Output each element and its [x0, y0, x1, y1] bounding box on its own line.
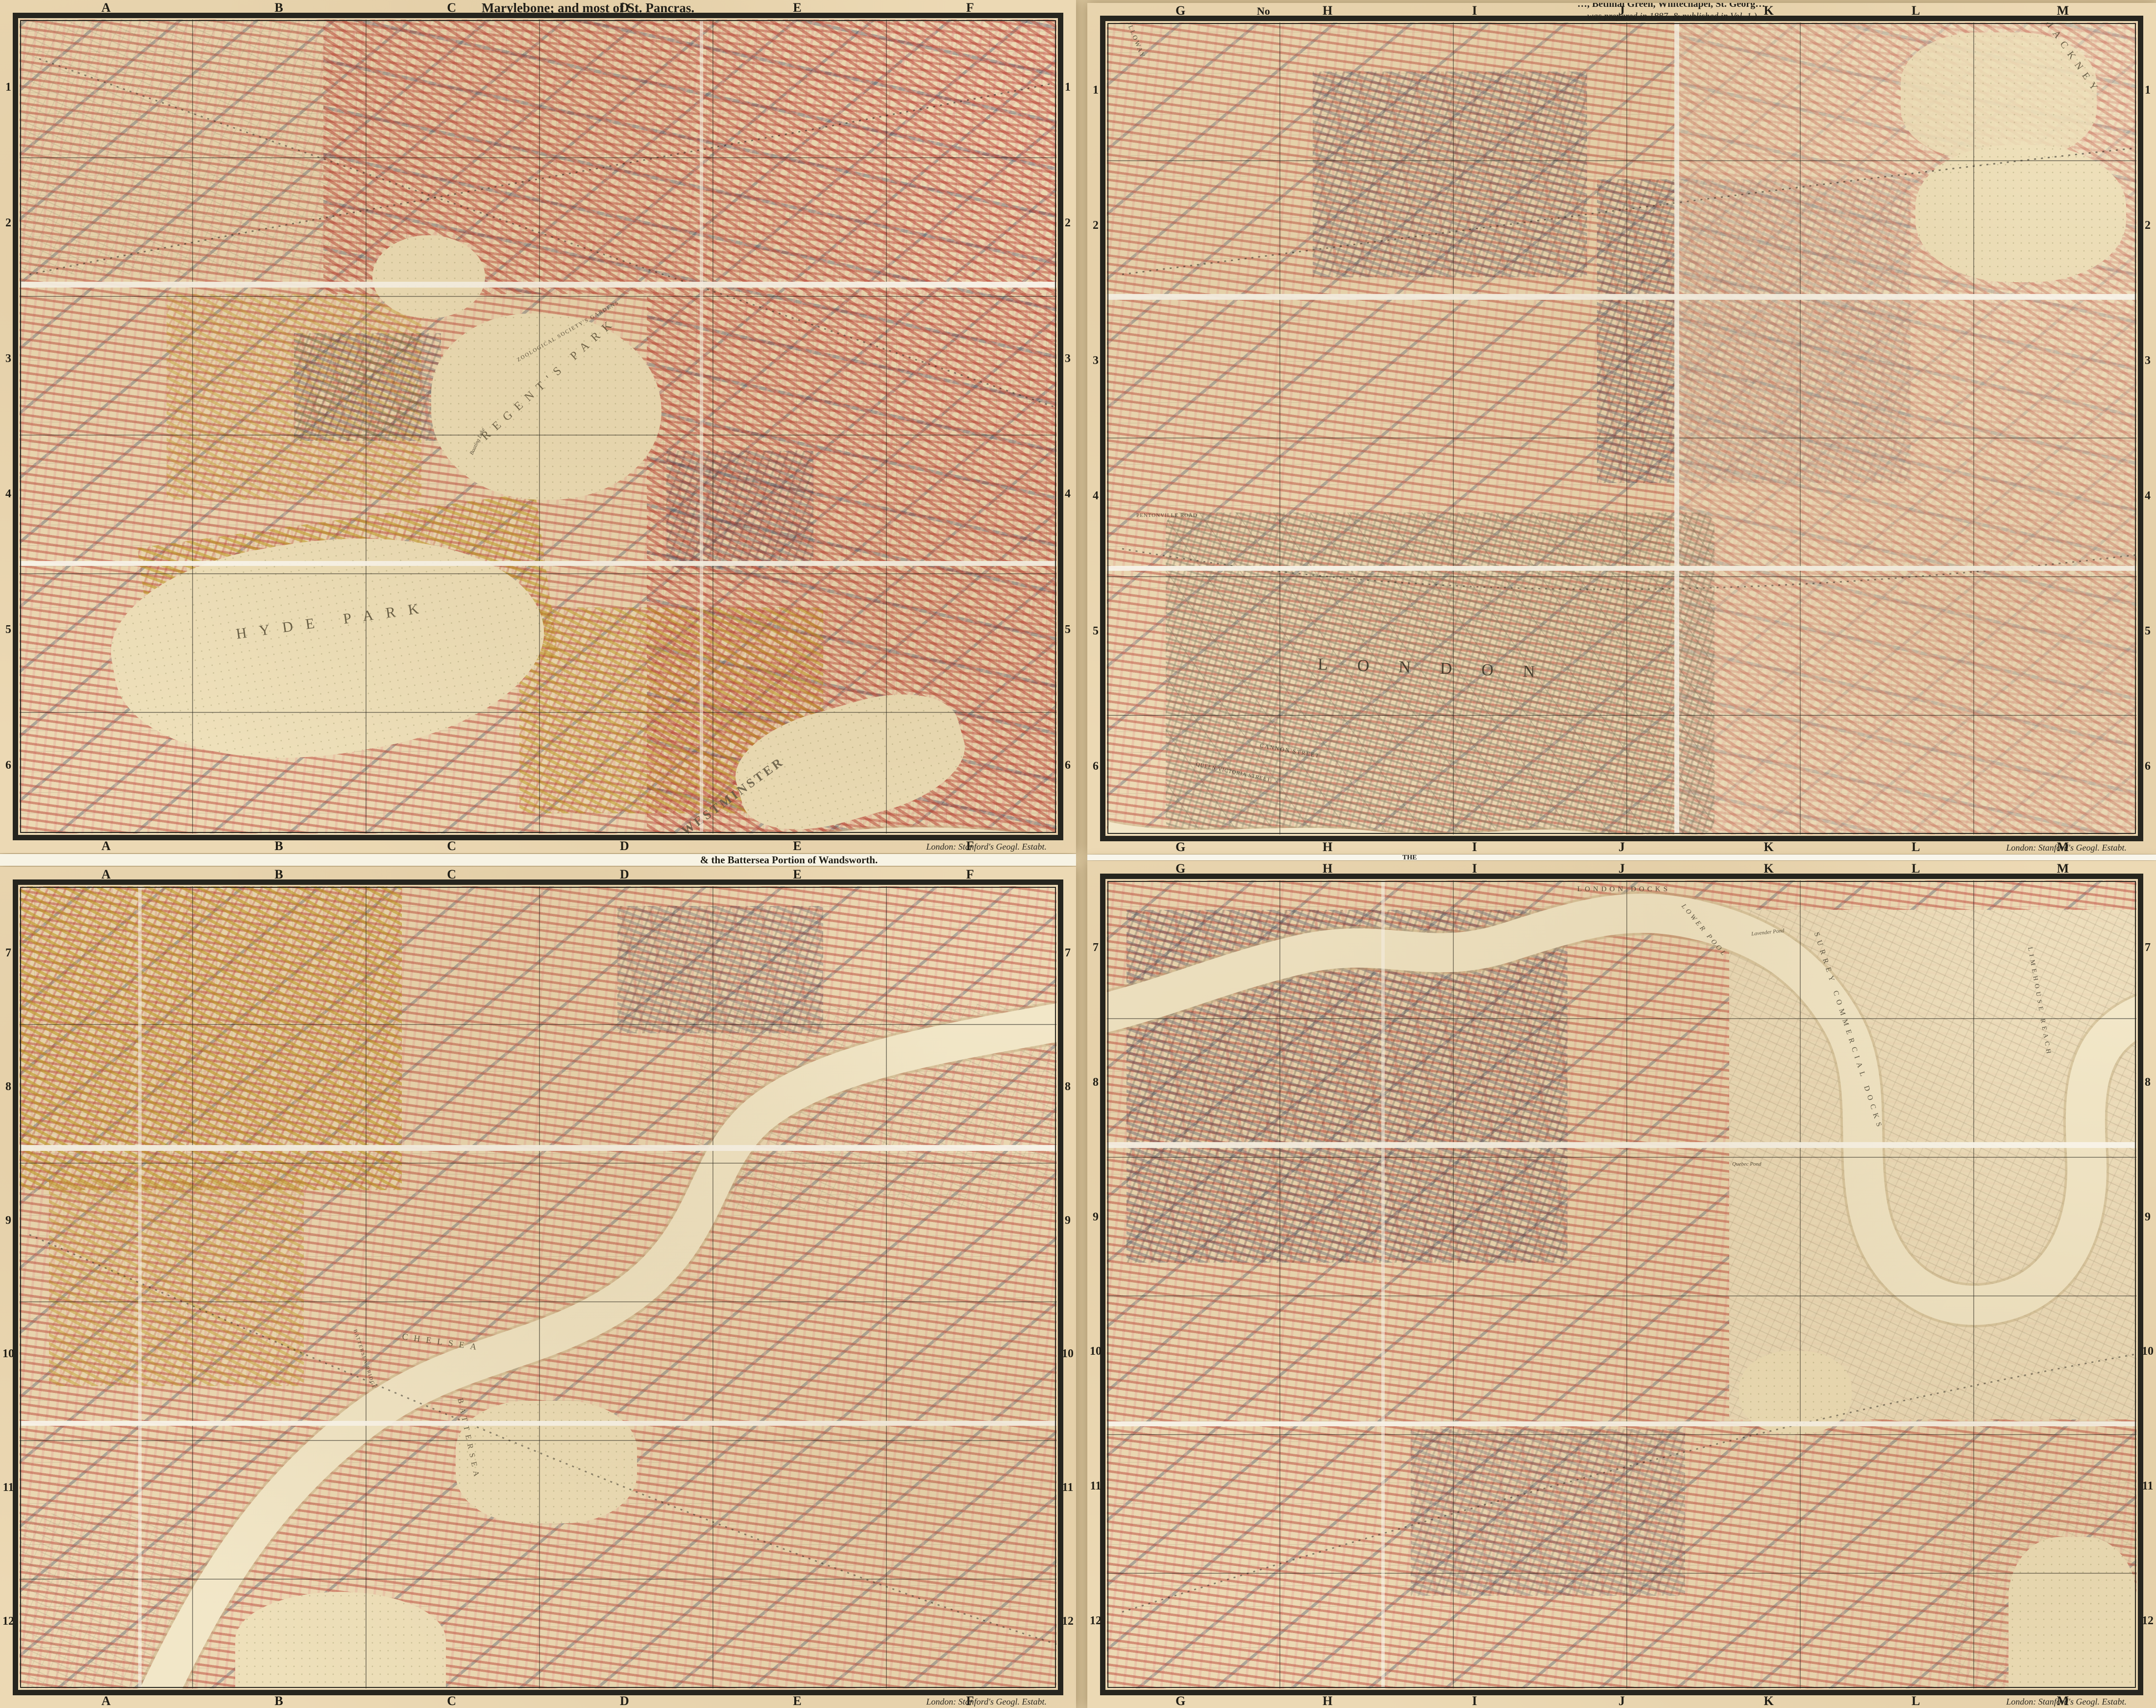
- grid-letter: D: [538, 839, 711, 853]
- grid-letter: A: [20, 0, 193, 14]
- grid-letter: H: [1254, 3, 1401, 17]
- grid-letter: E: [711, 839, 884, 853]
- grid-numbers-left: 123456: [1089, 23, 1102, 834]
- stanford-imprint: London: Stanford's Geogl. Estabt.: [2006, 1697, 2127, 1707]
- grid-letter: B: [193, 839, 366, 853]
- grid-letter: L: [1842, 840, 1989, 854]
- grid-number: 2: [2141, 158, 2155, 293]
- grid-number: 5: [1061, 562, 1075, 698]
- grid-letter: B: [193, 867, 366, 881]
- grid-letters-bottom: ABCDEF: [20, 1694, 1056, 1708]
- mounting-seam: [1107, 1142, 2136, 1148]
- grid-letter: J: [1548, 861, 1695, 875]
- mounting-seam: [20, 561, 1056, 566]
- map-sheet-northwest: HYDE PARK REGENT'S PARK ZOOLOGICAL SOCIE…: [0, 0, 1076, 853]
- grid-letter: I: [1401, 1694, 1548, 1708]
- grid-number: 3: [2141, 293, 2155, 428]
- grid-numbers-right: 123456: [2141, 23, 2155, 834]
- grid-number: 11: [2141, 1419, 2155, 1554]
- railway-line: [29, 1235, 1056, 1646]
- grid-number: 11: [1061, 1421, 1075, 1555]
- grid-letter: B: [193, 0, 366, 14]
- grid-numbers-right: 789101112: [1061, 886, 1075, 1688]
- grid-number: 4: [1089, 429, 1102, 564]
- label-london-docks: LONDON DOCKS: [1577, 885, 1670, 894]
- grid-letter: J: [1548, 1694, 1695, 1708]
- grid-letter: G: [1107, 3, 1254, 17]
- grid-letter: L: [1842, 861, 1989, 875]
- booth-poverty-map-composite: { "sheets": { "top_left": { "title": "Ma…: [0, 0, 2156, 1708]
- title-fragment-the: THE: [1402, 854, 1417, 862]
- grid-letter: A: [20, 1694, 193, 1708]
- mounting-seam: [1107, 294, 2136, 300]
- river-thames: [1107, 23, 2136, 834]
- railway-line: [1122, 147, 2136, 274]
- grid-number: 5: [1089, 564, 1102, 699]
- stanford-imprint: London: Stanford's Geogl. Estabt.: [926, 1697, 1047, 1707]
- grid-letter: D: [538, 867, 711, 881]
- grid-numbers-right: 789101112: [2141, 880, 2155, 1688]
- grid-letter: D: [538, 1694, 711, 1708]
- grid-letter: K: [1695, 861, 1842, 875]
- mounting-seam: [700, 20, 703, 833]
- grid-number: 9: [1, 1154, 15, 1288]
- grid-letter: G: [1107, 861, 1254, 875]
- title-fragment-no: No: [1257, 5, 1270, 18]
- grid-number: 1: [1, 20, 15, 155]
- grid-letter: H: [1254, 1694, 1401, 1708]
- grid-number: 12: [2141, 1554, 2155, 1688]
- grid-number: 6: [1089, 699, 1102, 834]
- grid-number: 11: [1, 1421, 15, 1555]
- grid-number: 4: [1, 426, 15, 562]
- grid-number: 1: [2141, 23, 2155, 158]
- grid-number: 6: [1, 698, 15, 833]
- grid-letter: J: [1548, 840, 1695, 854]
- grid-numbers-left: 789101112: [1, 886, 15, 1688]
- grid-letter: L: [1842, 3, 1989, 17]
- grid-number: 8: [1089, 1015, 1102, 1150]
- grid-letter: M: [1989, 861, 2136, 875]
- grid-letter: I: [1401, 3, 1548, 17]
- grid-number: 2: [1089, 158, 1102, 293]
- grid-number: 4: [2141, 429, 2155, 564]
- grid-number: 4: [1061, 426, 1075, 562]
- railway-line: [29, 83, 1053, 274]
- mounting-seam: [1107, 1421, 2136, 1426]
- grid-number: 7: [1061, 886, 1075, 1020]
- grid-number: 10: [1089, 1284, 1102, 1419]
- river-thames: [20, 886, 1056, 1688]
- mounting-gap-east: [1087, 854, 2156, 860]
- grid-letter: I: [1401, 840, 1548, 854]
- grid-letters-top: ABCDEF: [20, 867, 1056, 881]
- grid-number: 11: [1089, 1419, 1102, 1554]
- grid-number: 9: [1089, 1150, 1102, 1285]
- grid-number: 8: [2141, 1015, 2155, 1150]
- grid-number: 9: [2141, 1150, 2155, 1285]
- grid-number: 2: [1061, 155, 1075, 291]
- label-quebec-pond: Quebec Pond: [1732, 1161, 1762, 1167]
- grid-letter: K: [1695, 1694, 1842, 1708]
- title-fragment-east-sheets: …, Bethnal Green, Whitechapel, St. Georg…: [1577, 3, 1765, 10]
- map-face: CHELSEA BATTERSEA BATTERSEA BRIDGE: [20, 886, 1056, 1688]
- map-face: LONDON DOCKS LOWER POOL SURREY COMMERCIA…: [1107, 880, 2136, 1688]
- grid-number: 8: [1, 1020, 15, 1154]
- grid-number: 6: [1061, 698, 1075, 833]
- map-face: HOLLOWAY LONDON HACKNEY PENTONVILLE ROAD…: [1107, 23, 2136, 834]
- mounting-seam: [20, 1145, 1056, 1151]
- grid-numbers-left: 789101112: [1089, 880, 1102, 1688]
- grid-letter: E: [711, 1694, 884, 1708]
- grid-number: 8: [1061, 1020, 1075, 1154]
- grid-number: 6: [2141, 699, 2155, 834]
- grid-number: 10: [1061, 1287, 1075, 1421]
- map-sheet-southwest: CHELSEA BATTERSEA BATTERSEA BRIDGE ABCDE…: [0, 867, 1076, 1708]
- grid-number: 3: [1, 291, 15, 427]
- grid-letter: G: [1107, 1694, 1254, 1708]
- grid-number: 2: [1, 155, 15, 291]
- grid-number: 3: [1061, 291, 1075, 427]
- grid-letter: G: [1107, 840, 1254, 854]
- mounting-seam: [138, 886, 142, 1688]
- grid-letter: F: [883, 0, 1056, 14]
- grid-letters-top: GHIJKLM: [1107, 861, 2136, 875]
- stanford-imprint: London: Stanford's Geogl. Estabt.: [926, 842, 1047, 852]
- sheet-title-battersea: & the Battersea Portion of Wandsworth.: [617, 854, 960, 866]
- map-sheet-northeast: HOLLOWAY LONDON HACKNEY PENTONVILLE ROAD…: [1087, 3, 2156, 854]
- grid-letter: H: [1254, 861, 1401, 875]
- grid-letter: I: [1401, 861, 1548, 875]
- grid-number: 1: [1061, 20, 1075, 155]
- mounting-seam: [1107, 566, 2136, 571]
- grid-number: 9: [1061, 1154, 1075, 1288]
- grid-number: 5: [1, 562, 15, 698]
- grid-number: 5: [2141, 564, 2155, 699]
- grid-letter: A: [20, 867, 193, 881]
- grid-numbers-left: 123456: [1, 20, 15, 833]
- grid-number: 12: [1089, 1554, 1102, 1688]
- grid-letters-bottom: GHIJKLM: [1107, 1694, 2136, 1708]
- grid-numbers-right: 123456: [1061, 20, 1075, 833]
- grid-number: 12: [1061, 1555, 1075, 1688]
- grid-letter: C: [365, 1694, 538, 1708]
- grid-number: 7: [1, 886, 15, 1020]
- mounting-seam: [20, 282, 1056, 288]
- grid-number: 10: [1, 1287, 15, 1421]
- note-prepared-1887: was prepared in 1887, & published in Vol…: [1587, 11, 1757, 22]
- mounting-seam: [1381, 880, 1385, 1688]
- grid-letter: H: [1254, 840, 1401, 854]
- grid-letter: E: [711, 867, 884, 881]
- grid-number: 12: [1, 1555, 15, 1688]
- grid-number: 7: [2141, 880, 2155, 1015]
- grid-number: 10: [2141, 1284, 2155, 1419]
- grid-letter: M: [1989, 3, 2136, 17]
- river-thames: [20, 20, 1056, 833]
- sheet-title-marylebone: Marylebone; and most of St. Pancras.: [402, 0, 774, 16]
- map-face: HYDE PARK REGENT'S PARK ZOOLOGICAL SOCIE…: [20, 20, 1056, 833]
- railway-line: [1122, 1352, 2136, 1612]
- grid-letter: L: [1842, 1694, 1989, 1708]
- mounting-seam: [20, 1421, 1056, 1426]
- grid-letter: B: [193, 1694, 366, 1708]
- railway-line: [39, 59, 1053, 407]
- river-thames: [1107, 880, 2136, 1688]
- grid-letter: A: [20, 839, 193, 853]
- stanford-imprint: London: Stanford's Geogl. Estabt.: [2006, 843, 2127, 853]
- grid-letter: F: [883, 867, 1056, 881]
- grid-number: 1: [1089, 23, 1102, 158]
- label-pentonville-road: PENTONVILLE ROAD: [1136, 512, 1198, 518]
- grid-letter: C: [365, 839, 538, 853]
- grid-number: 3: [1089, 293, 1102, 428]
- grid-number: 7: [1089, 880, 1102, 1015]
- grid-letter: C: [365, 867, 538, 881]
- grid-letters-bottom: GHIJKLM: [1107, 840, 2136, 854]
- mounting-seam: [1674, 23, 1679, 834]
- grid-letter: K: [1695, 840, 1842, 854]
- map-sheet-southeast: LONDON DOCKS LOWER POOL SURREY COMMERCIA…: [1087, 861, 2156, 1708]
- grid-letters-bottom: ABCDEF: [20, 839, 1056, 853]
